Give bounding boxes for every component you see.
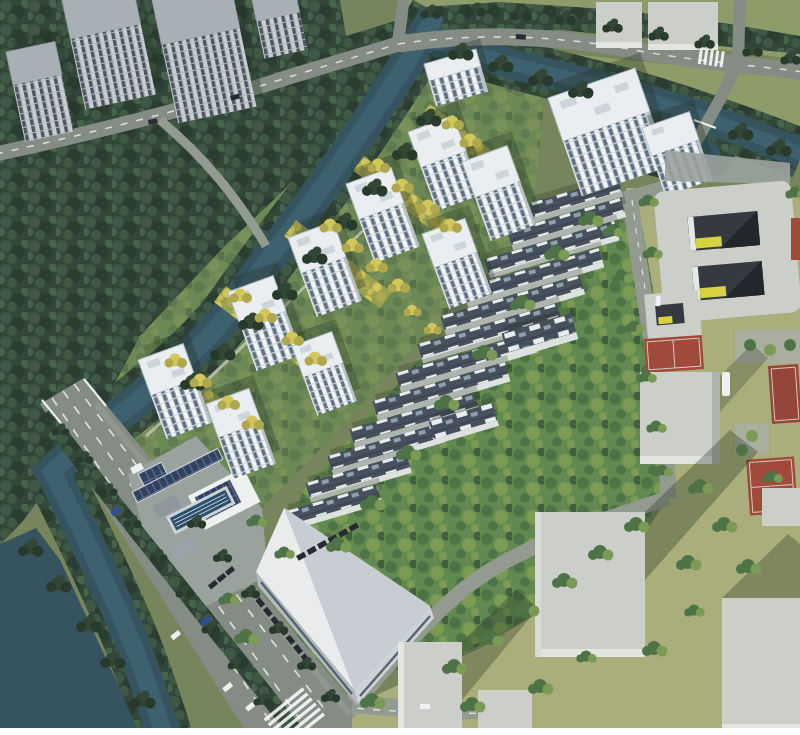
aerial-rendering <box>0 0 800 735</box>
court-east <box>768 364 800 424</box>
bottom-white-border <box>0 728 800 735</box>
court-sliver <box>791 218 800 260</box>
basketball-courts <box>644 335 704 373</box>
bus <box>722 372 730 396</box>
masterplan-rendering <box>0 0 800 735</box>
